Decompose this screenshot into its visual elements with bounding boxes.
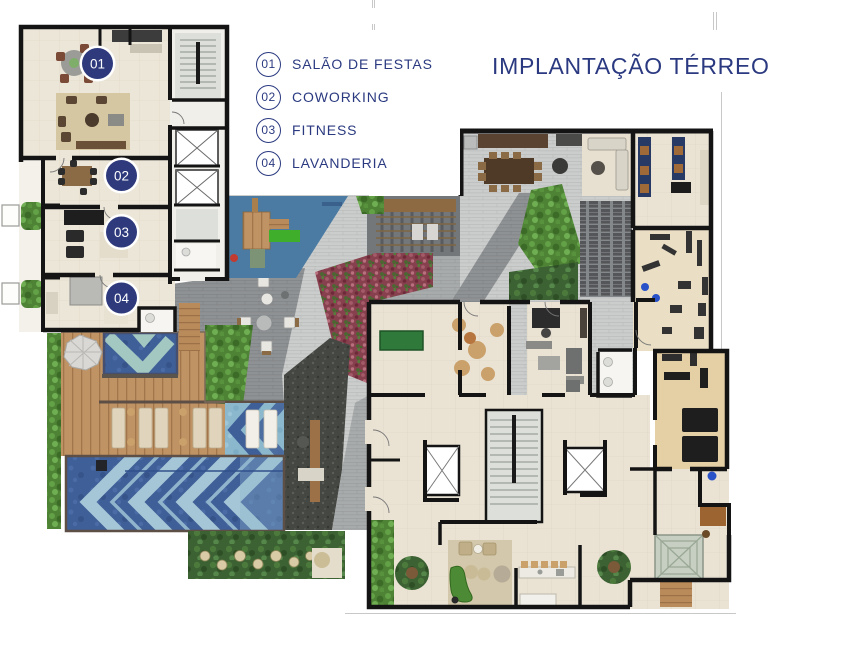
svg-text:01: 01 [90, 57, 105, 72]
svg-text:02: 02 [114, 169, 129, 184]
svg-text:03: 03 [114, 225, 129, 240]
svg-text:04: 04 [114, 291, 130, 306]
